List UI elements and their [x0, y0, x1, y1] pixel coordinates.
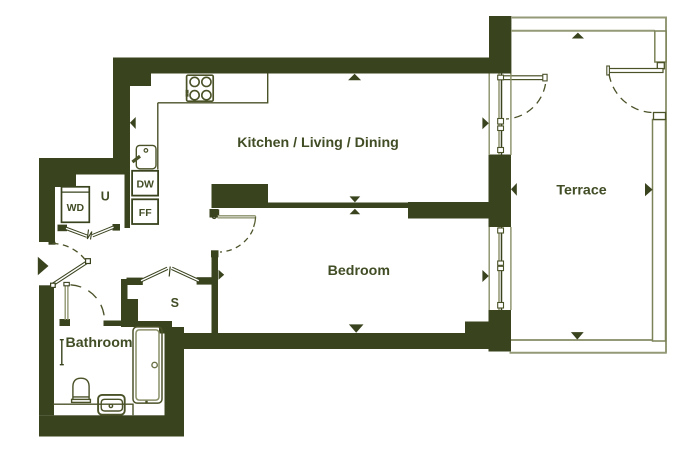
svg-text:Bathroom: Bathroom [66, 335, 133, 351]
svg-text:Kitchen / Living / Dining: Kitchen / Living / Dining [237, 135, 399, 151]
svg-text:FF: FF [139, 207, 152, 219]
svg-text:WD: WD [67, 202, 85, 214]
svg-text:U: U [101, 190, 110, 204]
svg-text:S: S [171, 296, 179, 310]
svg-text:Bedroom: Bedroom [328, 263, 390, 279]
svg-text:DW: DW [136, 178, 154, 190]
svg-text:Terrace: Terrace [556, 183, 606, 199]
